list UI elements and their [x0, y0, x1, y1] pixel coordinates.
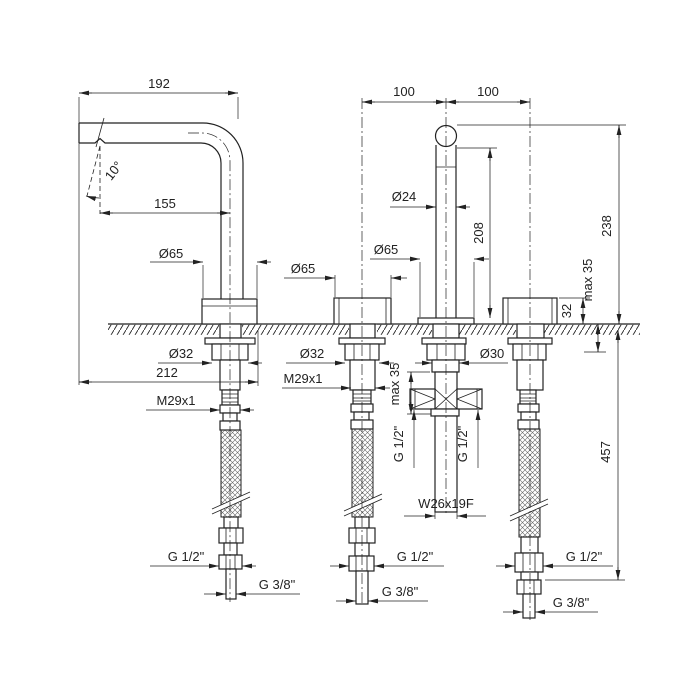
dim-100-right-label: 100 [477, 84, 499, 99]
dim-457: 457 [545, 330, 625, 580]
m29-mid-label: M29x1 [283, 371, 322, 386]
dim-g38-hose-mid: G 3/8" [336, 584, 428, 601]
dia65-mid-label: Ø65 [291, 261, 316, 276]
dia32-mid-label: Ø32 [300, 346, 325, 361]
dim-g38-hose-left: G 3/8" [204, 577, 300, 594]
g38-hose-mid-label: G 3/8" [382, 584, 419, 599]
dim-208-label: 208 [471, 222, 486, 244]
dia30-label: Ø30 [480, 346, 505, 361]
g12-hose-left-label: G 1/2" [168, 549, 205, 564]
dim-208: 208 [457, 148, 497, 318]
g38-hose-left-label: G 3/8" [259, 577, 296, 592]
dim-g38-hose-right: G 3/8" [503, 595, 598, 612]
dim-g12-spout-right: G 1/2" [455, 410, 478, 468]
g12-spout-left-label: G 1/2" [391, 425, 406, 462]
dim-w26: W26x19F [404, 496, 486, 519]
dim-g12-hose-mid: G 1/2" [330, 549, 444, 566]
dim-238-label: 238 [599, 215, 614, 237]
dim-32-label: 32 [559, 304, 574, 318]
dim-dia24: Ø24 [390, 189, 470, 207]
dim-g12-spout-left: G 1/2" [391, 410, 414, 468]
dia24-label: Ø24 [392, 189, 417, 204]
dim-100-left-label: 100 [393, 84, 415, 99]
g12-hose-right-label: G 1/2" [566, 549, 603, 564]
middle-handle-valve [334, 298, 391, 604]
dim-max35-right: max 35 [580, 259, 606, 352]
dim-212-label: 212 [156, 365, 178, 380]
dim-155-label: 155 [154, 196, 176, 211]
m29-left-label: M29x1 [156, 393, 195, 408]
max35-right-label: max 35 [580, 259, 595, 302]
drawing-canvas: 192 10° 155 Ø65 100 100 [0, 0, 700, 700]
faucet-technical-drawing: 192 10° 155 Ø65 100 100 [0, 0, 700, 700]
dim-dia65-mid: Ø65 [284, 261, 407, 297]
right-hose-braided [519, 429, 540, 537]
g38-hose-right-label: G 3/8" [553, 595, 590, 610]
dia32-left-label: Ø32 [169, 346, 194, 361]
g12-spout-right-label: G 1/2" [455, 425, 470, 462]
w26-label: W26x19F [418, 496, 474, 511]
dia65-left-label: Ø65 [159, 246, 184, 261]
dim-192-label: 192 [148, 76, 170, 91]
dim-457-label: 457 [598, 441, 613, 463]
max35-spout-label: max 35 [387, 363, 402, 406]
g12-hose-mid-label: G 1/2" [397, 549, 434, 564]
dim-g12-hose-right: G 1/2" [496, 549, 613, 566]
dia65-spout-label: Ø65 [374, 242, 399, 257]
